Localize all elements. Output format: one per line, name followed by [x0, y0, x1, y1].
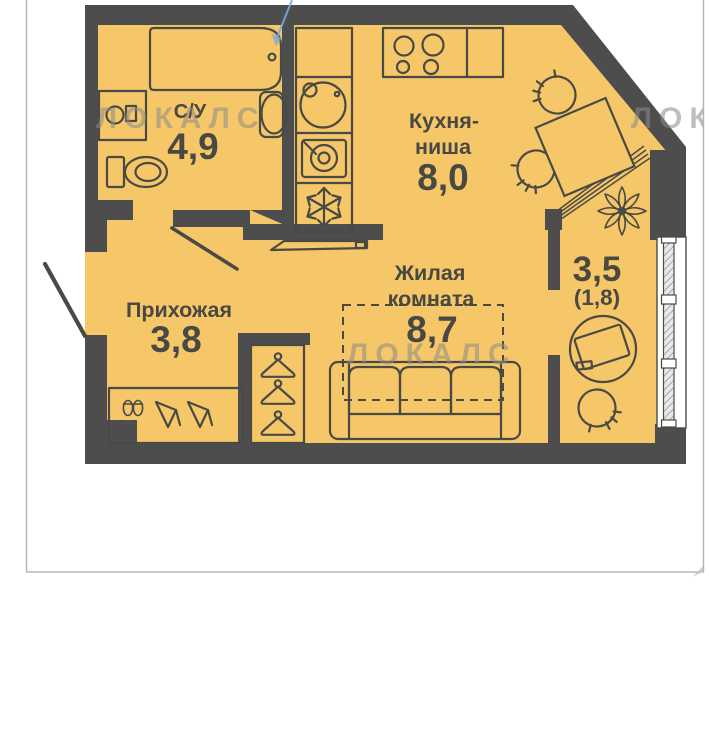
- watermark-top-right: ЛОКАЛС: [631, 102, 709, 135]
- floor-plan-image: С/У 4,9 Кухня- ниша 8,0 Жилая комната 8,…: [0, 0, 709, 733]
- kitchen-label-2: ниша: [415, 135, 472, 159]
- watermark-middle: ЛОКАЛС: [347, 338, 516, 371]
- window-glazing: [657, 237, 686, 428]
- kitchen-label-1: Кухня-: [409, 109, 479, 133]
- floor-plan-viewer: С/У 4,9 Кухня- ниша 8,0 Жилая комната 8,…: [0, 0, 709, 733]
- balcony-area: 3,5: [573, 250, 622, 289]
- watermark-top-left: ЛОКАЛС: [96, 102, 265, 135]
- living-label-2: комната: [388, 287, 476, 311]
- living-label-1: Жилая: [394, 261, 466, 285]
- balcony-area-secondary: (1,8): [574, 285, 620, 310]
- kitchen-area: 8,0: [417, 157, 468, 198]
- apartment-floor: [85, 5, 686, 464]
- hallway-area: 3,8: [150, 319, 201, 360]
